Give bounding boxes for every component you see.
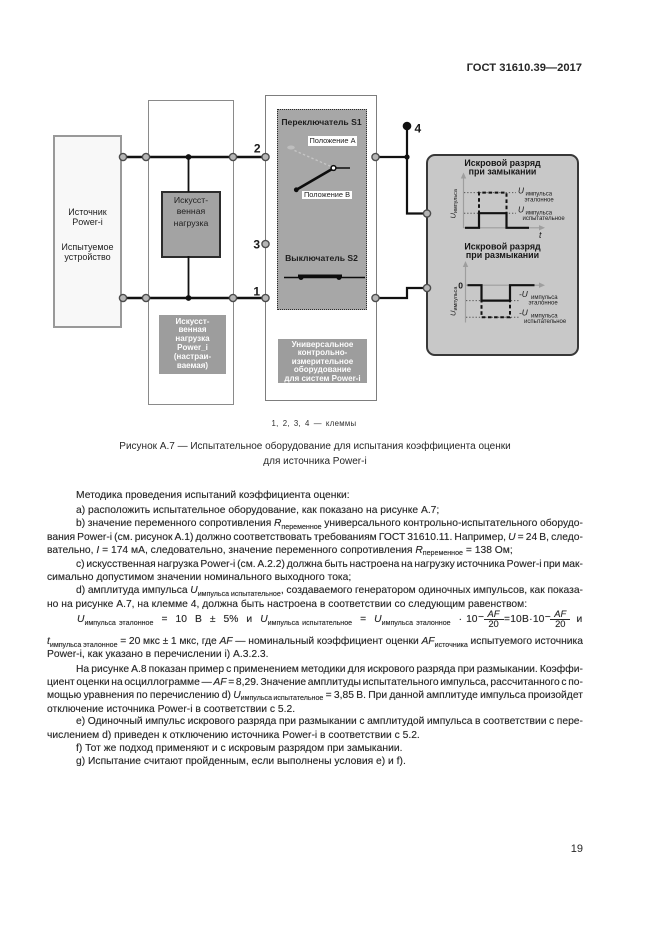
svg-text:U: U <box>518 186 525 196</box>
svg-text:эталонное: эталонное <box>529 301 559 307</box>
svg-text:испытательное: испытательное <box>524 319 567 325</box>
svg-text:эталонное: эталонное <box>525 197 555 203</box>
svg-text:U: U <box>518 205 525 215</box>
svg-text:Uимпульса: Uимпульса <box>449 189 459 218</box>
svg-text:0: 0 <box>458 281 463 291</box>
svg-text:t: t <box>539 230 542 240</box>
svg-text:3: 3 <box>253 238 260 252</box>
svg-text:1: 1 <box>253 285 260 299</box>
svg-text:испытательное: испытательное <box>523 216 566 222</box>
svg-text:при размыкании: при размыкании <box>466 250 539 260</box>
svg-text:4: 4 <box>415 122 422 136</box>
svg-text:Uимпульса: Uимпульса <box>449 287 459 316</box>
svg-text:-U: -U <box>519 307 529 317</box>
svg-text:при замыкании: при замыкании <box>469 167 537 177</box>
svg-text:-U: -U <box>519 289 529 299</box>
svg-text:2: 2 <box>254 142 261 156</box>
